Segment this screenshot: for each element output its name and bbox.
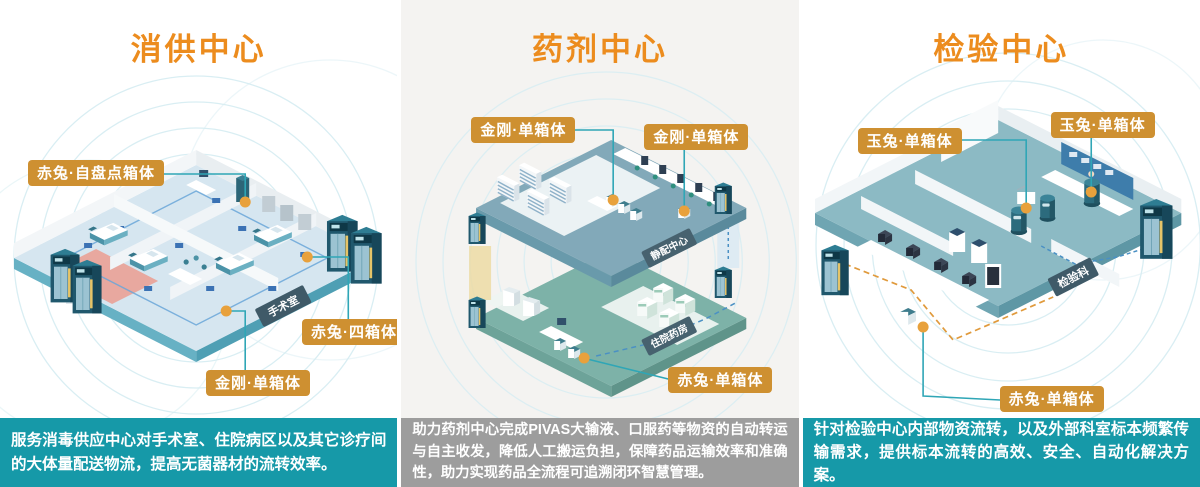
isometric-scene-disinfection: 手术室 bbox=[0, 0, 397, 487]
device-callout-label: 赤兔·四箱体 bbox=[302, 319, 397, 345]
page-title: 检验中心 bbox=[803, 24, 1200, 69]
page-title: 消供中心 bbox=[0, 24, 397, 69]
device-callout-label: 玉兔·单箱体 bbox=[858, 128, 962, 154]
device-callout-label: 金刚·单箱体 bbox=[644, 124, 748, 150]
device-callout-label: 赤兔·单箱体 bbox=[1000, 386, 1104, 412]
panel-caption: 针对检验中心内部物资流转，以及外部科室标本频繁传输需求，提供标本流转的高效、安全… bbox=[803, 418, 1200, 487]
hospital-logistics-infographic: 消供中心 bbox=[0, 0, 1200, 487]
device-callout-label: 赤兔·单箱体 bbox=[668, 367, 772, 393]
panel-laboratory-center: 检验中心 bbox=[803, 0, 1200, 487]
device-callout-label: 赤兔·自盘点箱体 bbox=[28, 160, 164, 186]
isometric-scene-pharmacy: 住院药房 bbox=[401, 0, 798, 487]
panel-caption: 服务消毒供应中心对手术室、住院病区以及其它诊疗间的大体量配送物流，提高无菌器材的… bbox=[0, 418, 397, 487]
page-title: 药剂中心 bbox=[401, 24, 798, 69]
device-callout-label: 金刚·单箱体 bbox=[206, 370, 310, 396]
device-callout-label: 玉兔·单箱体 bbox=[1051, 112, 1155, 138]
device-callout-label: 金刚·单箱体 bbox=[471, 117, 575, 143]
panel-pharmacy-center: 药剂中心 bbox=[401, 0, 798, 487]
upper-floor bbox=[476, 140, 746, 287]
panel-caption: 助力药剂中心完成PIVAS大输液、口服药等物资的自动转运与自主收发，降低人工搬运… bbox=[401, 418, 798, 487]
isometric-scene-laboratory: 检验科 bbox=[803, 0, 1200, 487]
panel-disinfection-supply-center: 消供中心 bbox=[0, 0, 397, 487]
